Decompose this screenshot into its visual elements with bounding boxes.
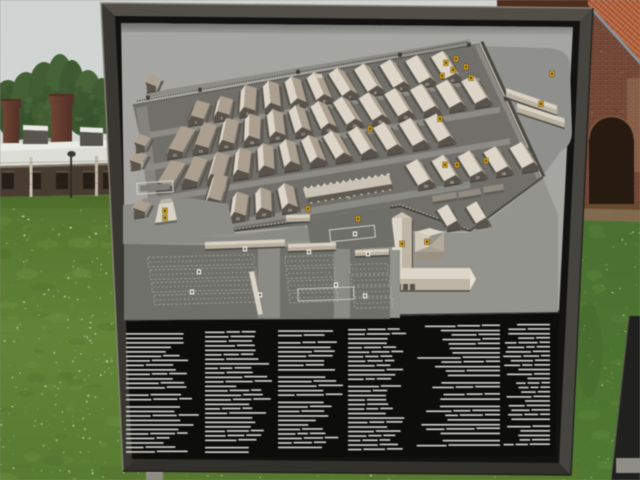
svg-text:9: 9 [400,87,402,91]
svg-text:12: 12 [173,154,177,158]
svg-text:26: 26 [450,180,454,184]
svg-text:2: 2 [221,117,223,121]
svg-text:22: 22 [236,217,240,221]
svg-text:3: 3 [348,196,350,200]
svg-text:10: 10 [425,83,429,87]
svg-text:25: 25 [424,185,428,189]
svg-text:24: 24 [288,209,292,213]
svg-text:3: 3 [246,112,248,116]
svg-text:6: 6 [323,100,325,104]
svg-text:17: 17 [301,133,305,137]
svg-text:14: 14 [224,145,228,149]
svg-text:23: 23 [262,213,266,217]
svg-text:11: 11 [451,78,455,82]
svg-text:16: 16 [276,137,280,141]
svg-text:28: 28 [502,172,506,176]
svg-text:1: 1 [195,121,197,125]
svg-text:15: 15 [250,141,254,145]
svg-text:8: 8 [375,91,377,95]
svg-text:13: 13 [199,150,203,154]
svg-text:20: 20 [378,120,382,124]
svg-text:7: 7 [349,95,351,99]
svg-text:27: 27 [476,176,480,180]
svg-text:21: 21 [404,116,408,120]
